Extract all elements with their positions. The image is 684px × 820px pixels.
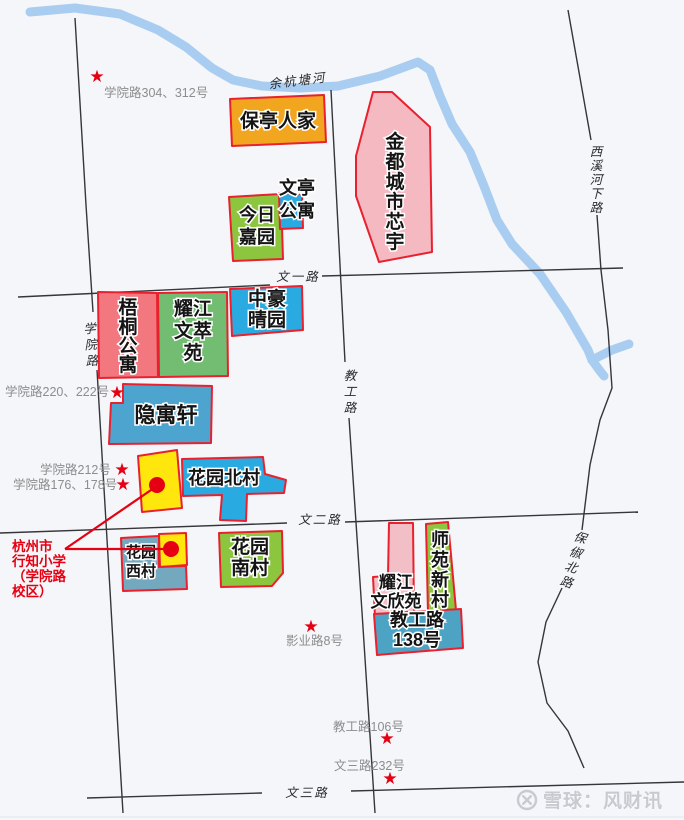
jiaogong-road-line-0 bbox=[331, 90, 345, 362]
address-label-1: 学院路220、222号 bbox=[5, 384, 109, 399]
baochu-north-road-line-0 bbox=[538, 588, 584, 768]
wenyi-road-line-1 bbox=[322, 268, 623, 276]
xixi-hexia-road-line-0 bbox=[568, 10, 591, 140]
address-label-3: 学院路176、178号 bbox=[13, 477, 117, 492]
star-marker-1: ★ bbox=[109, 383, 124, 403]
xueyuan-road-line-0 bbox=[75, 18, 93, 312]
star-marker-3: ★ bbox=[115, 475, 130, 495]
river-path-2 bbox=[592, 360, 604, 376]
star-marker-0: ★ bbox=[89, 67, 104, 87]
block-label-huayuan-nancun: 花园南村 bbox=[231, 535, 269, 579]
baochu-north-road-label: 保俶北路 bbox=[558, 528, 590, 591]
school-name-label: 杭州市行知小学（学院路校区） bbox=[11, 538, 66, 599]
block-label-jiaogonglu-138: 教工路138号 bbox=[390, 609, 445, 650]
block-label-shiyuan-xincun: 师苑新村 bbox=[431, 529, 449, 610]
wenyi-road-label: 文一路 bbox=[276, 269, 320, 284]
address-label-5: 教工路106号 bbox=[333, 719, 404, 734]
watermark: 雪球：风财讯 bbox=[516, 786, 663, 813]
block-huayuan-beicun bbox=[182, 457, 286, 521]
wener-road-line-1 bbox=[345, 512, 638, 522]
xixi-hexia-road-label: 西溪河下路 bbox=[590, 144, 605, 215]
jiaogong-road-line-1 bbox=[349, 418, 375, 813]
xueqiu-logo-icon bbox=[516, 789, 538, 811]
address-label-2: 学院路212号 bbox=[40, 462, 111, 477]
block-label-baoting-renjia: 保亭人家 bbox=[239, 109, 317, 132]
block-label-wutong-gongyu: 梧桐公寓 bbox=[118, 296, 137, 376]
school-location-dot-1 bbox=[163, 541, 179, 557]
district-map: 余杭塘河学院路文一路教工路文二路文三路西溪河下路保俶北路保亭人家金都城市芯宇今日… bbox=[0, 0, 684, 820]
block-label-zhonghao-qingyuan: 中豪晴园 bbox=[248, 287, 286, 331]
jiaogong-road-label: 教工路 bbox=[344, 368, 359, 415]
address-label-4: 影业路8号 bbox=[286, 633, 343, 648]
map-canvas: 余杭塘河学院路文一路教工路文二路文三路西溪河下路保俶北路保亭人家金都城市芯宇今日… bbox=[0, 0, 684, 820]
watermark-text: 雪球：风财讯 bbox=[543, 786, 663, 813]
wener-road-label: 文二路 bbox=[298, 512, 342, 527]
wensan-road-line-0 bbox=[87, 793, 262, 798]
school-location-dot-0 bbox=[149, 477, 165, 493]
block-label-huayuan-beicun: 花园北村 bbox=[188, 467, 260, 488]
address-label-6: 文三路232号 bbox=[334, 758, 405, 773]
block-label-yinyuxuan: 隐寓轩 bbox=[135, 403, 198, 427]
wensan-road-label: 文三路 bbox=[285, 785, 329, 800]
address-label-0: 学院路304、312号 bbox=[104, 85, 208, 100]
block-label-jindu-chengshi-xinyu: 金都城市芯宇 bbox=[384, 130, 405, 253]
